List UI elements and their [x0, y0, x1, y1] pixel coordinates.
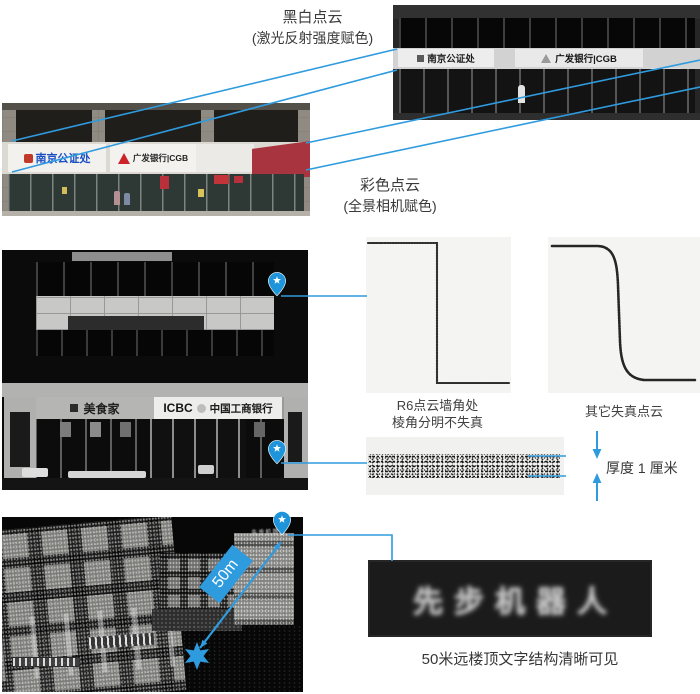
rooftop-caption: 50米远楼顶文字结构清晰可见 — [355, 648, 685, 669]
right-building — [234, 533, 294, 625]
ground-highlight — [22, 468, 48, 477]
r6-caption-line2: 棱角分明不失真 — [360, 414, 515, 431]
r6-corner-caption: R6点云墙角处 棱角分明不失真 — [360, 397, 515, 431]
bw-label-line2: (激光反射强度赋色) — [205, 28, 420, 48]
bw-cgb-sign-text: 广发银行|CGB — [555, 51, 617, 65]
color-notary-sign-text: 南京公证处 — [36, 150, 91, 166]
rooftop-text-pointcloud: 先步机器人 — [402, 577, 618, 621]
color-cgb-sign-text: 广发银行|CGB — [133, 152, 188, 164]
window-bay — [16, 110, 92, 142]
person-figure — [124, 193, 130, 205]
slab-dark-notch — [68, 316, 204, 330]
window-row-lower — [36, 330, 274, 356]
color-label-line1: 彩色点云 — [305, 176, 475, 196]
down-arrow-head-icon — [593, 449, 602, 459]
left-pillar-inset — [10, 412, 30, 467]
foodie-sign-text: 美食家 — [83, 400, 119, 417]
color-notary-sign: 南京公证处 — [8, 144, 106, 172]
icbc-pointcloud-image: 美食家 ICBC 中国工商银行 — [2, 250, 308, 490]
bw-label-line1: 黑白点云 — [205, 8, 420, 28]
icbc-name-text: 中国工商银行 — [210, 401, 273, 416]
glass-poster — [120, 422, 131, 437]
icbc-sign: ICBC 中国工商银行 — [154, 397, 282, 419]
ground-speckle — [2, 625, 303, 692]
aerial-pointcloud-image: 先步机器人 — [2, 517, 303, 692]
distorted-corner-line — [552, 246, 696, 380]
red-poster — [234, 176, 243, 183]
cgb-triangle-logo-icon — [118, 153, 130, 164]
ground-highlight — [68, 471, 146, 478]
bw-storefront — [399, 69, 695, 115]
red-poster — [214, 175, 229, 184]
distorted-corner-plot — [548, 237, 700, 393]
color-roof-strip — [2, 103, 310, 110]
bw-notary-sign-text: 南京公证处 — [427, 51, 475, 65]
cgb-logo-icon — [541, 54, 551, 63]
window-bay — [105, 110, 201, 142]
point-speckle-band — [368, 454, 560, 478]
ground-highlight — [198, 465, 214, 474]
color-label-line2: (全景相机赋色) — [305, 196, 475, 216]
right-pillar-inset — [288, 412, 302, 462]
person-figure — [114, 191, 120, 205]
page-canvas: 南京公证处 广发银行|CGB 南京公证处 广发银行|CGB — [0, 0, 700, 694]
sharp-corner-line — [368, 243, 509, 383]
distorted-corner-profile-panel — [548, 237, 700, 393]
thickness-label: 厚度 1 厘米 — [606, 458, 678, 478]
callout-line-rooftop — [288, 535, 392, 561]
icbc-logo-icon — [197, 404, 206, 413]
yellow-notice — [62, 187, 67, 194]
bw-ground-strip — [393, 113, 700, 120]
r6-caption-line1: R6点云墙角处 — [360, 397, 515, 414]
glass-poster — [60, 422, 71, 437]
roof-patch — [72, 252, 172, 261]
sharp-corner-plot — [366, 237, 511, 393]
up-arrow-head-icon — [593, 473, 602, 483]
r6-corner-profile-panel — [366, 237, 511, 393]
color-storefront — [8, 174, 304, 211]
glass-poster — [254, 422, 265, 437]
bw-cgb-sign: 广发银行|CGB — [515, 49, 643, 67]
bw-notary-sign: 南京公证处 — [398, 49, 494, 67]
blank-sign-panel — [196, 144, 254, 172]
red-poster — [160, 176, 169, 189]
foodie-sign: 美食家 — [36, 397, 154, 419]
color-cgb-sign: 广发银行|CGB — [110, 144, 196, 172]
glass-poster — [90, 422, 101, 437]
icbc-abbr-text: ICBC — [163, 401, 192, 415]
bw-pointcloud-label: 黑白点云 (激光反射强度赋色) — [205, 8, 420, 48]
window-bay — [214, 110, 298, 142]
color-photo-image: 南京公证处 广发银行|CGB — [2, 103, 310, 216]
sidewalk-strip — [2, 211, 310, 216]
bw-roof-strip — [393, 5, 700, 19]
rooftop-text-panel: 先步机器人 — [368, 560, 652, 637]
window-row-upper — [36, 262, 274, 296]
person-figure — [518, 85, 525, 103]
wall-thickness-panel — [366, 437, 564, 495]
bw-window-row — [399, 18, 695, 48]
notary-logo-icon — [417, 55, 424, 62]
canopy-beam — [2, 383, 308, 397]
notary-seal-icon — [24, 154, 33, 163]
ground-strip — [2, 478, 308, 490]
other-distorted-caption: 其它失真点云 — [545, 403, 700, 420]
bw-pointcloud-image: 南京公证处 广发银行|CGB — [393, 5, 700, 120]
yellow-notice — [198, 189, 204, 197]
color-pointcloud-label: 彩色点云 (全景相机赋色) — [305, 176, 475, 216]
foodie-logo-icon — [70, 404, 78, 412]
